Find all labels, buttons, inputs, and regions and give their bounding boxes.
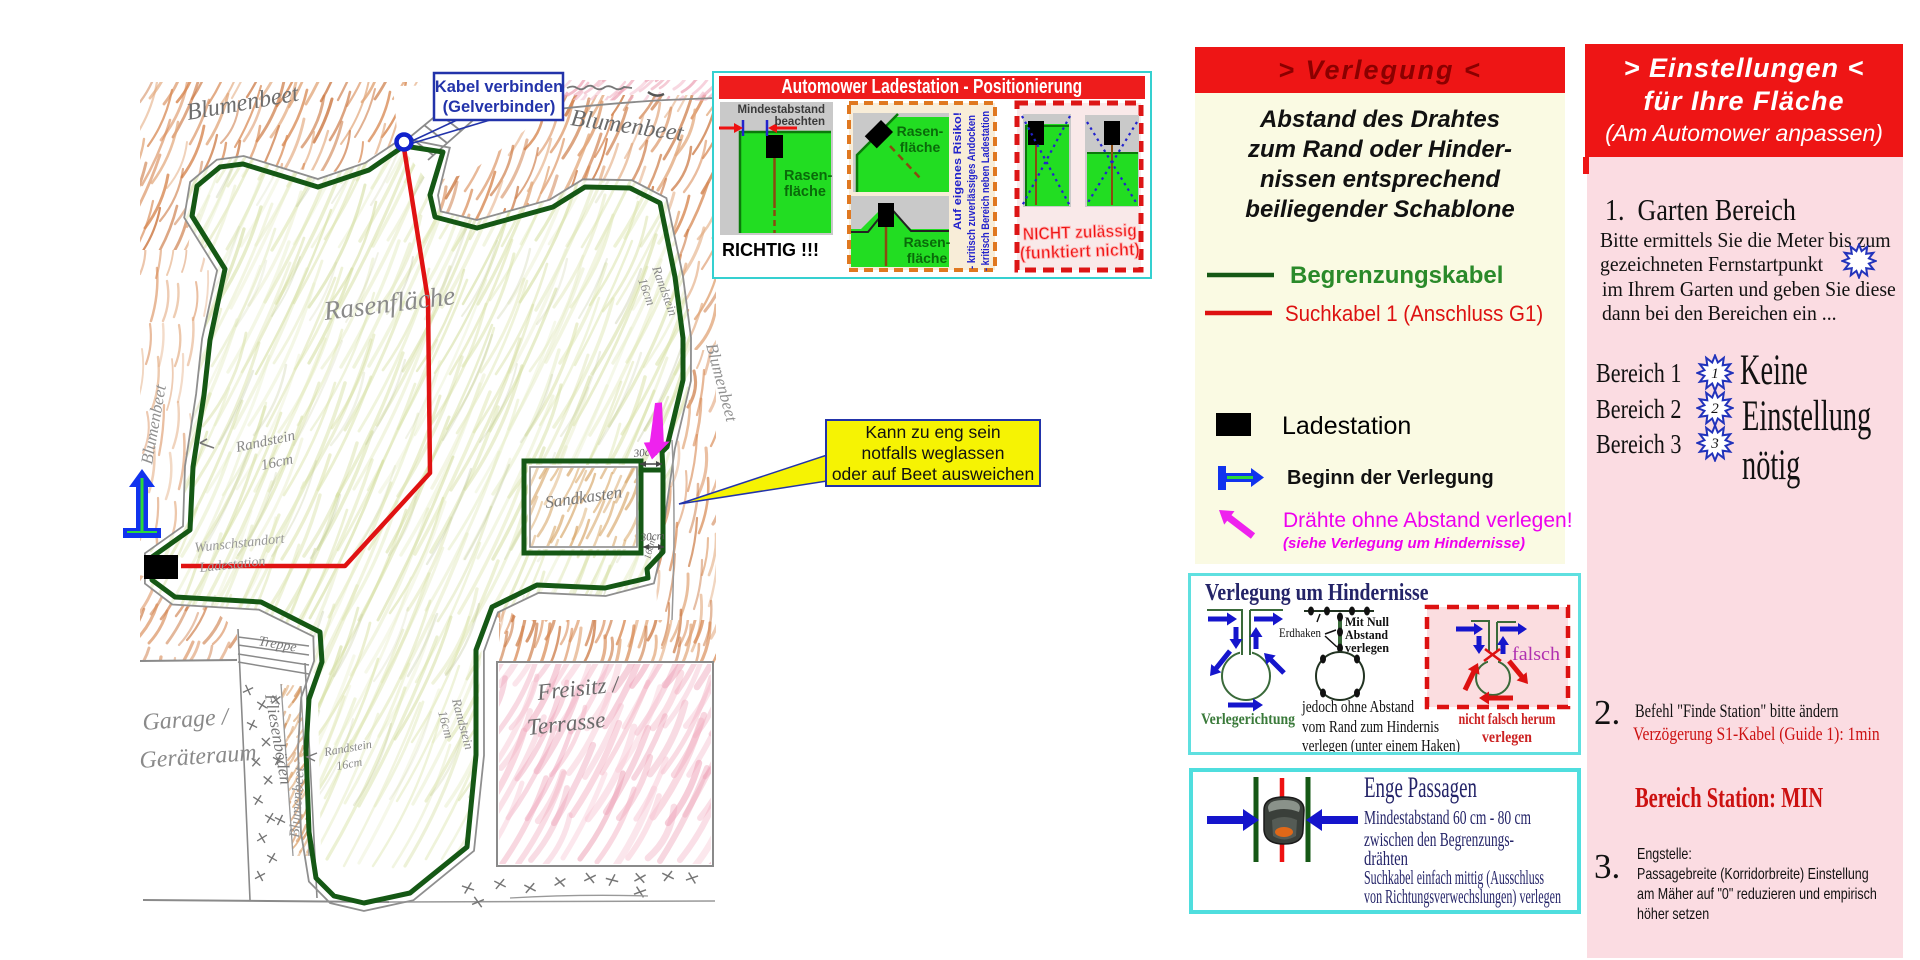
svg-text:Blumenbeet: Blumenbeet: [137, 382, 170, 466]
svg-text:vom Rand zum Hindernis: vom Rand zum Hindernis: [1302, 717, 1439, 736]
svg-text:beachten: beachten: [775, 116, 826, 128]
svg-text:Blumenbeet: Blumenbeet: [702, 341, 741, 425]
svg-text:2: 2: [1711, 401, 1719, 417]
svg-text:Rasen-: Rasen-: [897, 123, 944, 139]
svg-text:verlegen: verlegen: [1482, 729, 1532, 746]
svg-text:Auf eigenes Risiko!: Auf eigenes Risiko!: [952, 112, 964, 230]
svg-text:Blumenbeet: Blumenbeet: [185, 80, 302, 126]
svg-text:Abstand: Abstand: [1345, 628, 1388, 642]
svg-text:jedoch ohne Abstand: jedoch ohne Abstand: [1301, 697, 1414, 716]
svg-text:Kabel verbinden: Kabel verbinden: [435, 78, 563, 96]
svg-text:nicht falsch herum: nicht falsch herum: [1459, 711, 1557, 728]
svg-text:Verlegerichtung: Verlegerichtung: [1201, 711, 1295, 728]
svg-text:falsch: falsch: [1512, 644, 1561, 665]
svg-text:fläche: fläche: [900, 139, 941, 155]
svg-text:oder auf Beet ausweichen: oder auf Beet ausweichen: [832, 464, 1034, 484]
svg-text:fläche: fläche: [784, 184, 826, 200]
svg-text:Mindestabstand: Mindestabstand: [737, 104, 825, 116]
svg-text:Enge Passagen: Enge Passagen: [1364, 772, 1477, 804]
svg-text:- kritisch zuverlässiges Andoc: - kritisch zuverlässiges Andocken: [966, 115, 978, 269]
svg-text:Erdhaken: Erdhaken: [1279, 625, 1321, 640]
svg-text:1: 1: [1711, 366, 1719, 382]
svg-text:(Gelverbinder): (Gelverbinder): [443, 98, 556, 116]
svg-text:verlegen (unter einem Haken): verlegen (unter einem Haken): [1302, 736, 1460, 752]
svg-text:Kann zu eng sein: Kann zu eng sein: [865, 422, 1000, 442]
svg-text:Rasen-: Rasen-: [904, 234, 951, 250]
svg-text:Mit Null: Mit Null: [1345, 615, 1390, 629]
svg-text:Mindestabstand 60 cm - 80 cm: Mindestabstand 60 cm - 80 cm: [1364, 807, 1531, 829]
svg-text:verlegen: verlegen: [1345, 641, 1389, 655]
svg-text:von Richtungsverwechslungen) v: von Richtungsverwechslungen) verlegen: [1364, 886, 1561, 908]
svg-text:Rasen-: Rasen-: [784, 168, 833, 184]
svg-text:notfalls weglassen: notfalls weglassen: [862, 443, 1005, 463]
svg-text:RICHTIG !!!: RICHTIG !!!: [722, 240, 819, 260]
svg-text:- kritisch Bereich neben Lades: - kritisch Bereich neben Ladestation: [980, 111, 992, 271]
svg-text:fläche: fläche: [907, 250, 948, 266]
svg-text:(funktiert nicht): (funktiert nicht): [1019, 239, 1140, 263]
svg-text:3: 3: [1710, 436, 1719, 452]
